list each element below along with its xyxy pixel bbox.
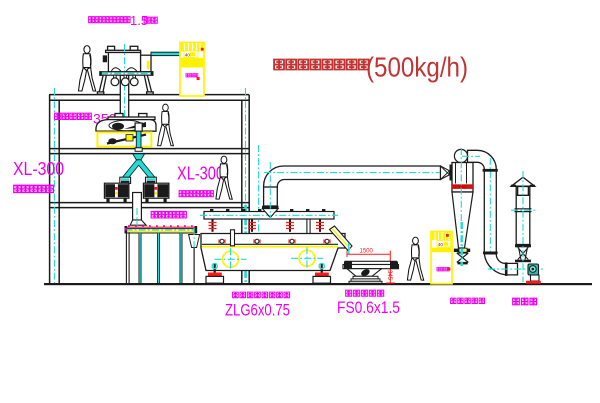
svg-text:1500: 1500 (360, 249, 374, 255)
svg-text:XL-300: XL-300 (177, 163, 224, 184)
svg-text:(500kg/h): (500kg/h) (366, 52, 468, 83)
svg-text:XL-300: XL-300 (13, 158, 64, 179)
svg-text:40: 40 (438, 242, 444, 247)
svg-text:345: 345 (386, 270, 392, 281)
svg-text:ZLG6x0.75: ZLG6x0.75 (225, 302, 290, 320)
svg-text:FY60: FY60 (455, 185, 466, 190)
svg-text:40: 40 (185, 52, 191, 57)
svg-text:FS0.6x1.5: FS0.6x1.5 (337, 298, 400, 317)
